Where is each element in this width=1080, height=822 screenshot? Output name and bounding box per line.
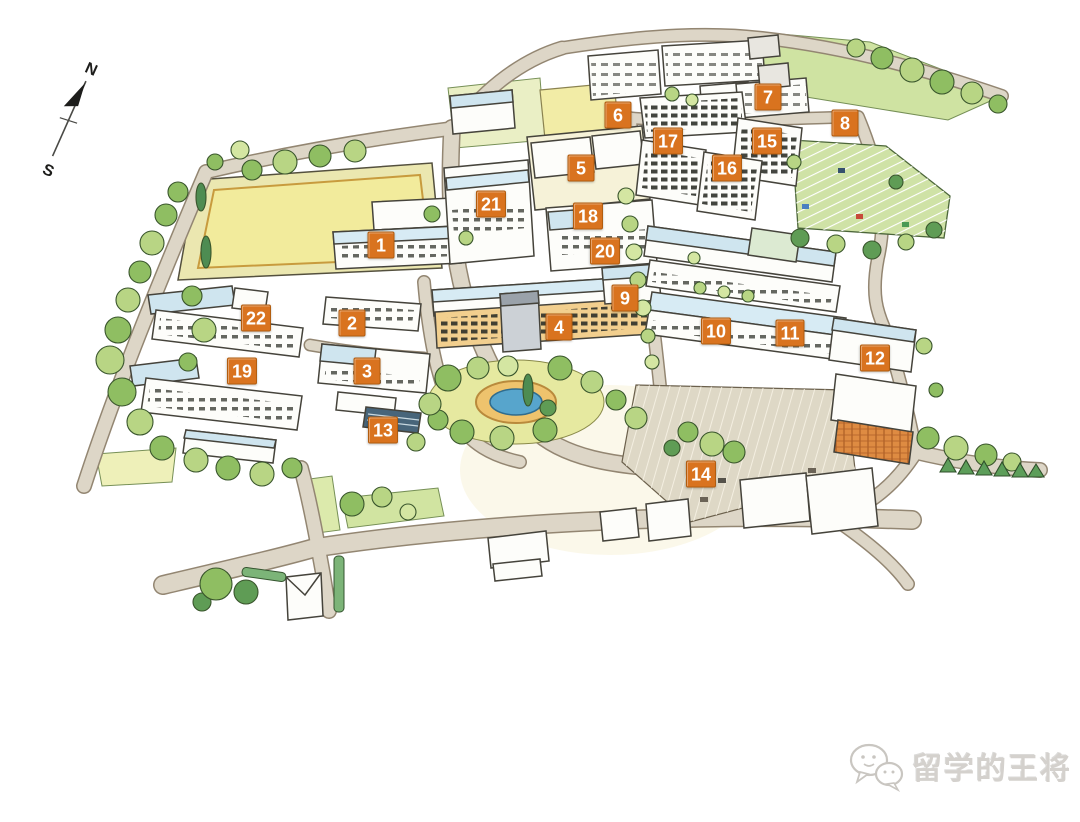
map-marker-2: 2 bbox=[339, 310, 366, 337]
map-marker-20: 20 bbox=[590, 238, 620, 265]
map-marker-6: 6 bbox=[605, 102, 632, 129]
campus-map: N S 12345678910111213141516171819202122 bbox=[0, 0, 1080, 660]
watermark: 留学的王将 bbox=[848, 740, 1072, 792]
map-marker-8: 8 bbox=[832, 110, 859, 137]
map-marker-18: 18 bbox=[573, 203, 603, 230]
map-marker-7: 7 bbox=[755, 84, 782, 111]
map-marker-9: 9 bbox=[612, 285, 639, 312]
map-marker-19: 19 bbox=[227, 358, 257, 385]
map-marker-16: 16 bbox=[712, 155, 742, 182]
campus-map-page: N S 12345678910111213141516171819202122 … bbox=[0, 0, 1080, 822]
watermark-text: 留学的王将 bbox=[912, 744, 1072, 788]
map-marker-17: 17 bbox=[653, 128, 683, 155]
map-marker-1: 1 bbox=[368, 232, 395, 259]
map-marker-15: 15 bbox=[752, 128, 782, 155]
map-marker-22: 22 bbox=[241, 305, 271, 332]
map-marker-4: 4 bbox=[546, 314, 573, 341]
map-marker-5: 5 bbox=[568, 155, 595, 182]
map-marker-13: 13 bbox=[368, 417, 398, 444]
watermark-logo-icon bbox=[848, 740, 906, 792]
map-marker-11: 11 bbox=[775, 320, 804, 347]
map-marker-12: 12 bbox=[860, 345, 890, 372]
map-marker-10: 10 bbox=[701, 318, 731, 345]
marker-layer: 12345678910111213141516171819202122 bbox=[0, 0, 1080, 660]
map-marker-3: 3 bbox=[354, 358, 381, 385]
map-marker-21: 21 bbox=[476, 191, 506, 218]
map-marker-14: 14 bbox=[686, 461, 716, 488]
